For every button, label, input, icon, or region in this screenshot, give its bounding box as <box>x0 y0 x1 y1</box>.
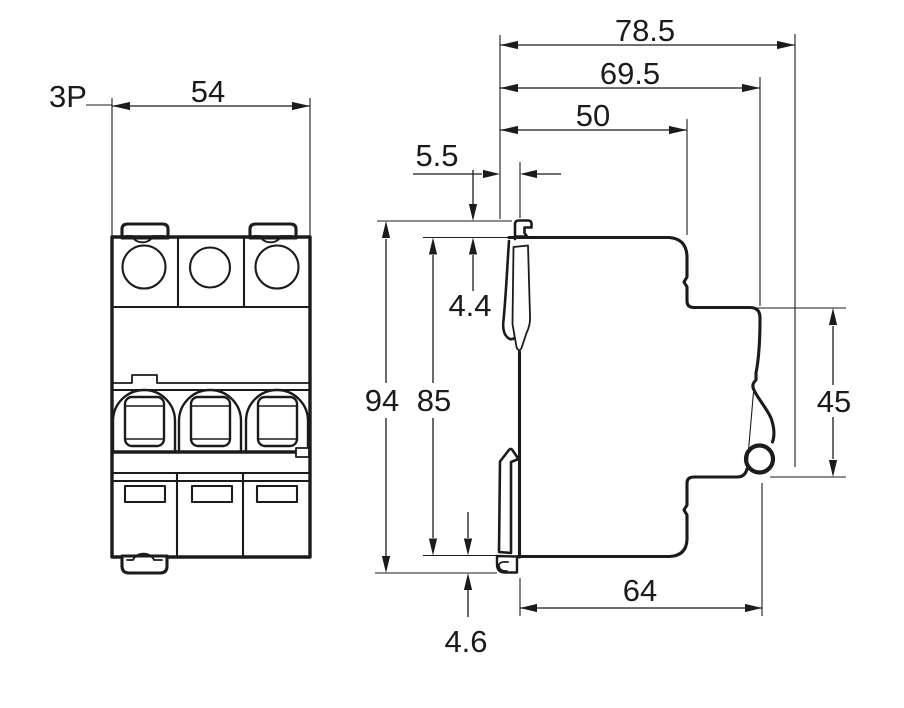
dim-depth-without-clips-label: 69.5 <box>600 56 660 91</box>
dim-front-width-label: 54 <box>191 74 225 109</box>
dimension-drawing-canvas: 3P 54 78.5 69.5 50 <box>0 0 904 708</box>
bottom-din-clip <box>497 449 519 573</box>
terminal-screw-3 <box>256 246 299 289</box>
technical-drawing: 3P 54 78.5 69.5 50 <box>0 0 904 708</box>
dim-front-width: 54 <box>112 74 310 110</box>
top-din-clip <box>503 221 531 351</box>
extension-lines <box>86 34 846 616</box>
bottom-clip-arm <box>499 449 519 553</box>
top-clip-slider <box>513 246 531 351</box>
front-view <box>112 224 310 573</box>
dim-overall-depth-label: 78.5 <box>615 13 675 48</box>
bottom-window-2 <box>192 486 232 502</box>
bottom-window-3 <box>257 486 297 502</box>
side-body-lower-outline <box>518 469 747 557</box>
dim-lower-depth: 64 <box>520 573 762 612</box>
dim-body-height: 85 <box>417 238 451 556</box>
dim-body-height-label: 85 <box>417 383 451 418</box>
dim-lower-depth-label: 64 <box>623 573 657 608</box>
toggle-lever-loop <box>746 446 773 473</box>
dim-overall-height-label: 94 <box>365 383 399 418</box>
toggle-handles <box>125 397 297 446</box>
label-window-line <box>112 375 310 383</box>
dimension-annotations: 3P 54 78.5 69.5 50 <box>49 13 851 659</box>
front-bottom-tab <box>122 556 167 573</box>
dim-top-clip-protrusion: 4.4 <box>448 170 491 323</box>
dim-bottom-clip-protrusion: 4.6 <box>444 512 487 659</box>
dim-overall-height: 94 <box>365 221 399 573</box>
dim-front-face-height-label: 45 <box>817 384 851 419</box>
dim-clip-offset: 5.5 <box>413 138 561 178</box>
side-clip-detail <box>296 448 309 457</box>
dim-front-face-height: 45 <box>817 308 851 477</box>
dim-bottom-clip-protrusion-label: 4.6 <box>444 624 487 659</box>
dim-depth-without-clips: 69.5 <box>500 56 760 92</box>
terminal-screw-1 <box>123 246 166 289</box>
side-view <box>497 221 774 573</box>
dim-top-clip-protrusion-label: 4.4 <box>448 288 491 323</box>
bottom-window-1 <box>125 486 165 502</box>
pole-count-label: 3P <box>49 79 87 114</box>
dim-upper-depth-label: 50 <box>576 98 610 133</box>
side-body-upper-outline <box>509 238 774 443</box>
terminal-screw-2 <box>190 248 230 288</box>
dim-overall-depth: 78.5 <box>500 13 795 49</box>
dim-upper-depth: 50 <box>500 98 687 134</box>
dim-clip-offset-label: 5.5 <box>415 138 458 173</box>
